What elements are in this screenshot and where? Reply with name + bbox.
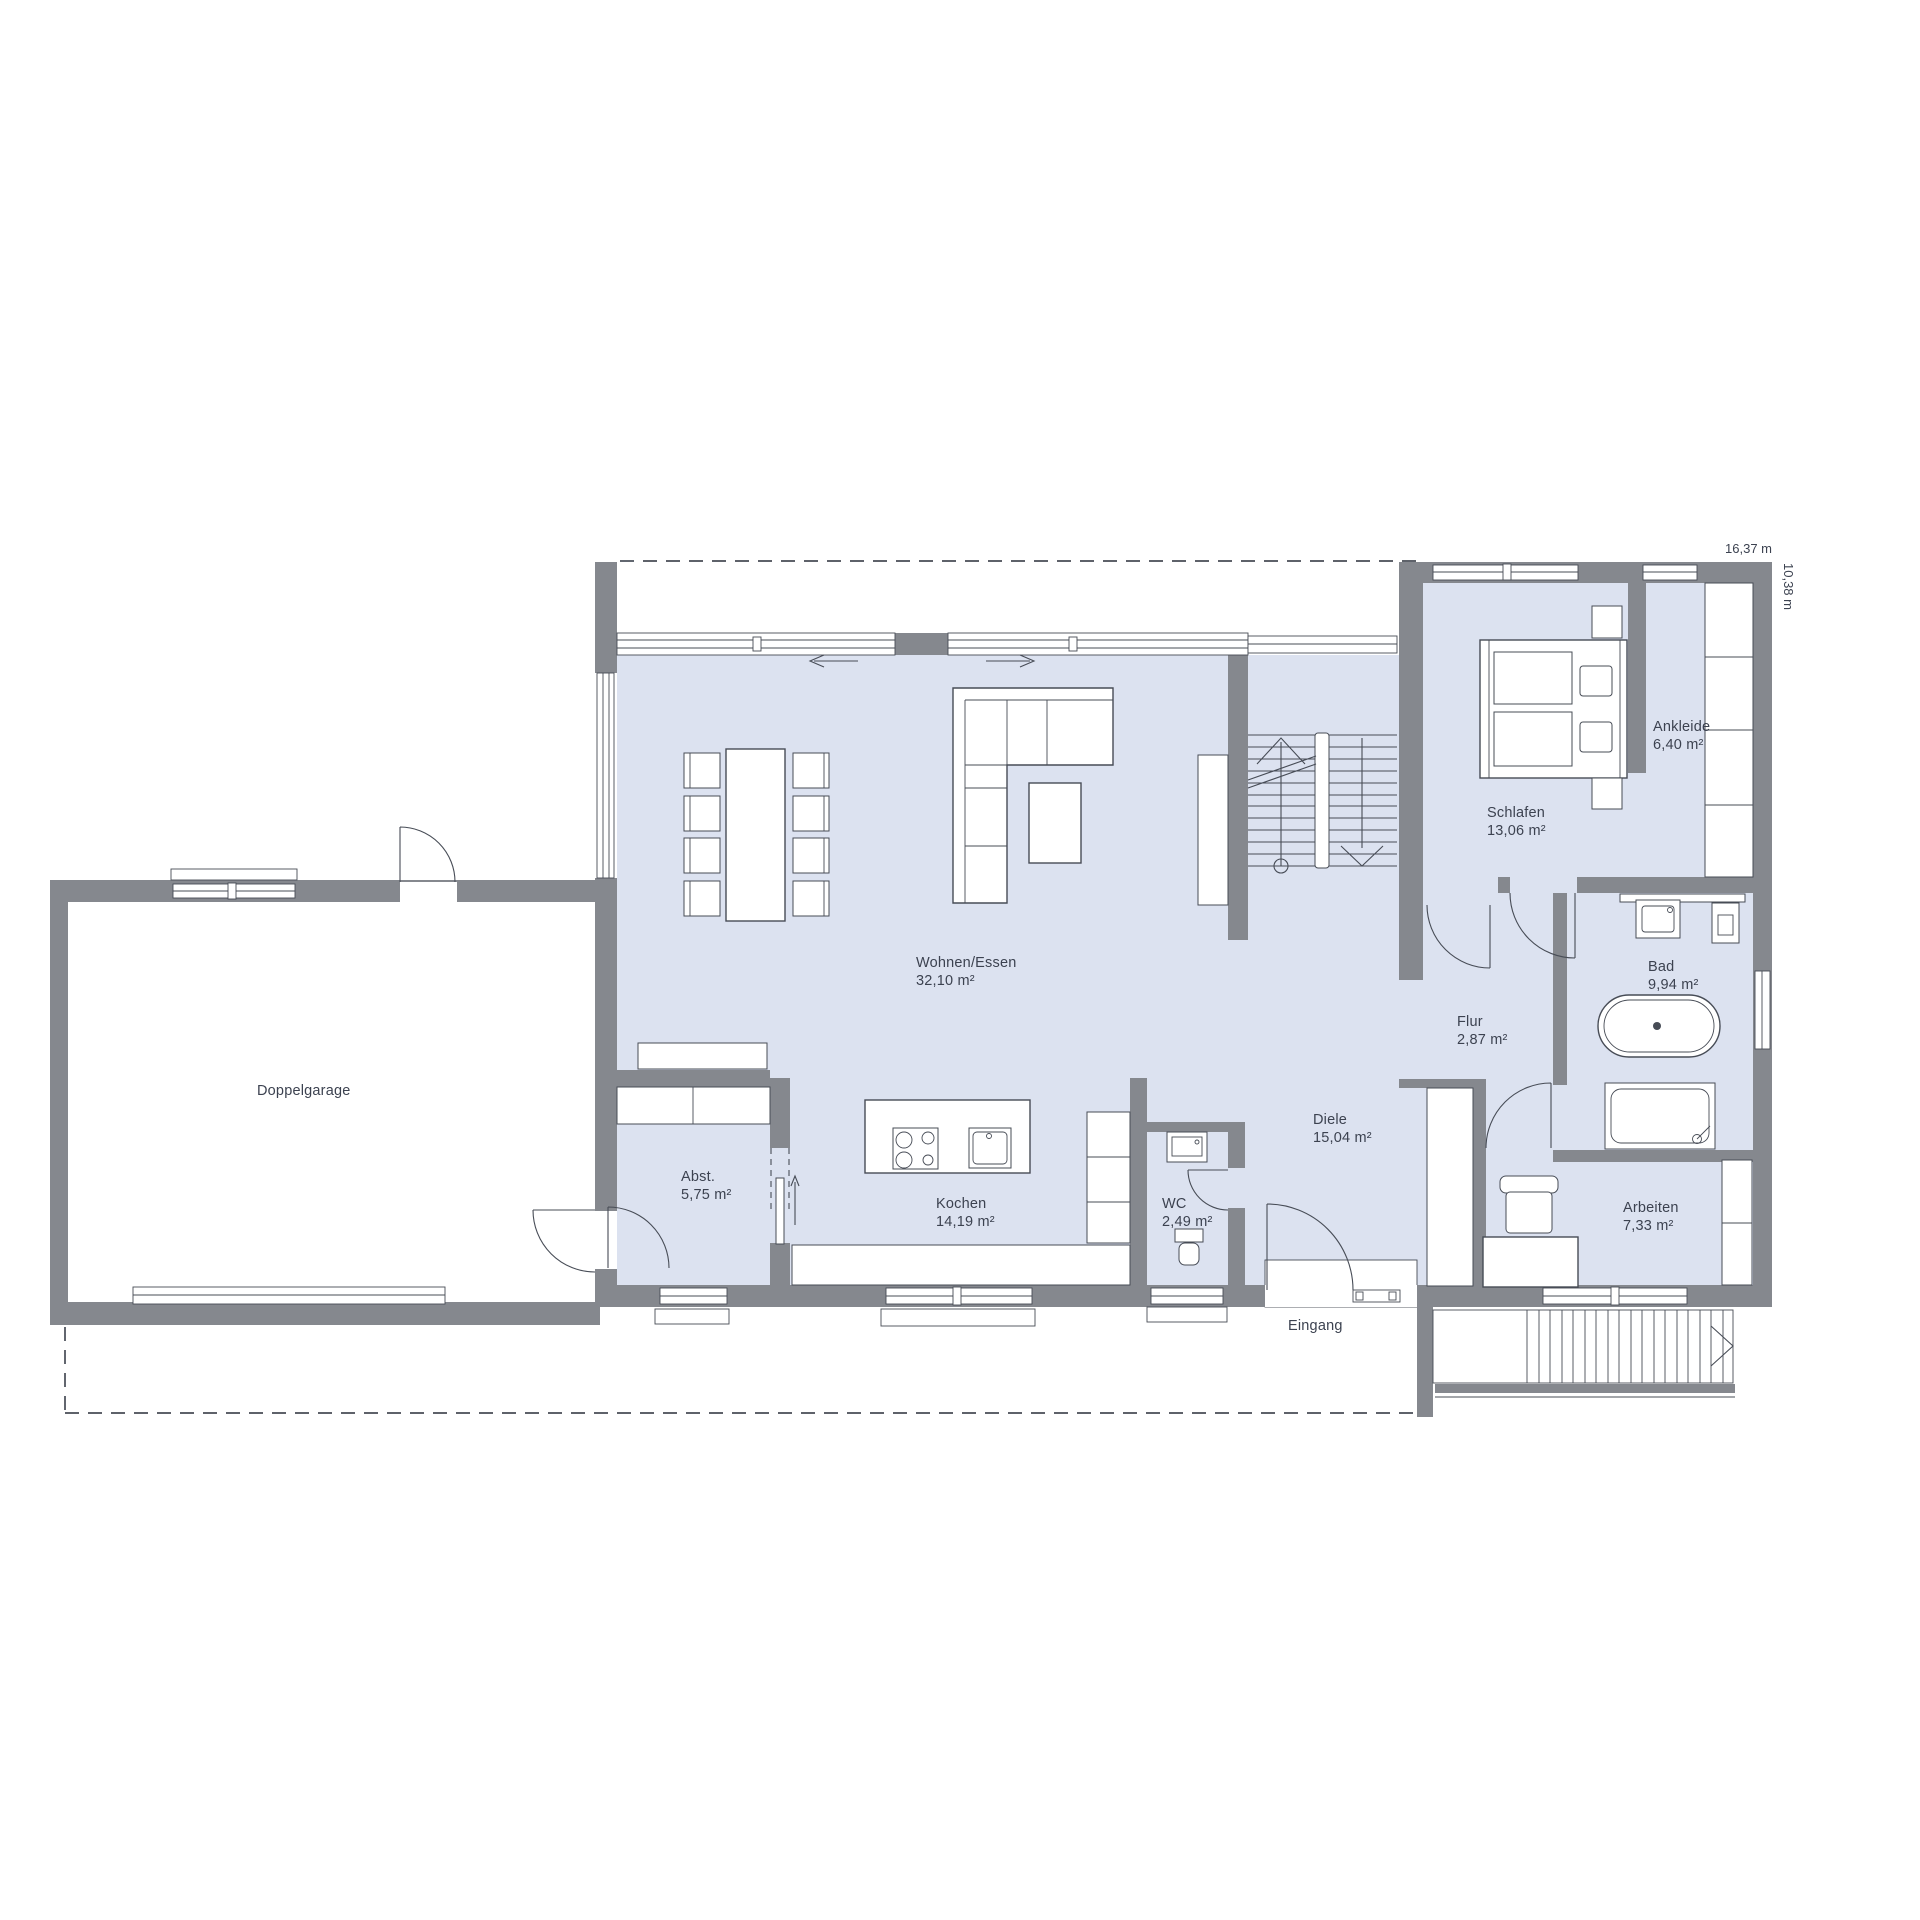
window-joint-tick-2: [1069, 637, 1077, 651]
garage-side-door-opening: [400, 882, 457, 902]
diele-closet: [1427, 1088, 1473, 1286]
label-entrance: Eingang: [1288, 1318, 1343, 1334]
bed-mattress: [1494, 712, 1572, 766]
label-schlafen-area: 13,06 m²: [1487, 823, 1546, 839]
label-wohnen-area: 32,10 m²: [916, 973, 975, 989]
floor-garage: [68, 902, 595, 1302]
dining-chair: [684, 881, 720, 916]
dimension-depth: 10,38 m: [1781, 563, 1796, 610]
tv-sideboard: [1198, 755, 1228, 905]
nightstand: [1592, 606, 1622, 638]
entrance-sidelight-tick-2: [1389, 1292, 1396, 1300]
wall-west-mid: [595, 878, 617, 1211]
wall-garage-north: [68, 880, 600, 902]
kitchen-counter-south: [792, 1245, 1130, 1285]
wall-abst-north: [615, 1070, 770, 1087]
desk-chair-back: [1500, 1176, 1558, 1193]
dining-chair: [684, 796, 720, 831]
stairs-exterior: [1433, 1310, 1735, 1397]
wall-flur-north-1: [1498, 877, 1510, 893]
window-living-north-2: [948, 633, 1248, 655]
window-garage-tick: [228, 883, 236, 899]
dimension-width: 16,37 m: [1725, 541, 1772, 556]
label-arbeiten-area: 7,33 m²: [1623, 1218, 1674, 1234]
label-schlafen-name: Schlafen: [1487, 805, 1545, 821]
wall-schlafen-ankleide: [1628, 583, 1646, 773]
shower: [1605, 1083, 1715, 1149]
bed-pillow: [1580, 722, 1612, 752]
nightstand: [1592, 778, 1622, 809]
bed-mattress: [1494, 652, 1572, 704]
sideboard-abst-wall: [638, 1043, 767, 1069]
cooktop: [893, 1128, 938, 1169]
sill-wc-south: [1147, 1307, 1227, 1322]
label-ankleide-area: 6,40 m²: [1653, 737, 1704, 753]
window-bad-east: [1755, 971, 1770, 1049]
sill-abst-south: [655, 1309, 729, 1324]
wall-wc-west: [1130, 1078, 1147, 1307]
wall-flur-bad: [1553, 893, 1567, 1085]
abst-shelf: [617, 1087, 770, 1124]
bed-pillow: [1580, 666, 1612, 696]
window-arbeiten-tick: [1611, 1287, 1619, 1305]
window-stairwell-north: [1248, 636, 1397, 653]
wall-west-top: [595, 562, 617, 673]
dining-table: [726, 749, 785, 921]
stairs-center-stringer: [1315, 733, 1329, 868]
floor-plan-page: Wohnen/Essen 32,10 m² Kochen 14,19 m² Ab…: [0, 0, 1920, 1920]
label-wc-area: 2,49 m²: [1162, 1214, 1213, 1230]
label-diele-area: 15,04 m²: [1313, 1130, 1372, 1146]
wall-abst-east-2: [770, 1243, 790, 1285]
bathtub-drain: [1653, 1022, 1661, 1030]
wall-wc-north: [1147, 1122, 1230, 1132]
wall-pier-north-glazing: [895, 633, 948, 655]
wall-wc-east-2: [1228, 1208, 1245, 1285]
arbeiten-shelf: [1722, 1160, 1752, 1285]
wall-east: [1753, 562, 1772, 1307]
window-ankleide-north: [1643, 565, 1697, 580]
label-abst-name: Abst.: [681, 1169, 715, 1185]
window-living-west: [597, 673, 614, 878]
wall-garage-south: [50, 1302, 600, 1325]
toilet-bowl: [1179, 1243, 1199, 1265]
label-bad-name: Bad: [1648, 959, 1674, 975]
dining-chair: [684, 753, 720, 788]
label-garage: Doppelgarage: [257, 1083, 351, 1099]
sill-garage-north: [171, 869, 297, 880]
wall-stairwell-east: [1399, 562, 1423, 980]
wall-flur-north-2: [1577, 877, 1753, 893]
sill-kochen-south: [881, 1309, 1035, 1326]
ottoman: [1029, 783, 1081, 863]
door-garage-side: [400, 827, 455, 882]
bad-radiator: [1712, 903, 1739, 943]
wall-abst-east-1: [770, 1078, 790, 1148]
label-diele-name: Diele: [1313, 1112, 1347, 1128]
wc-sink: [1167, 1132, 1207, 1162]
label-kochen-name: Kochen: [936, 1196, 986, 1212]
window-schlafen-tick: [1503, 564, 1511, 580]
label-flur-area: 2,87 m²: [1457, 1032, 1508, 1048]
label-kochen-area: 14,19 m²: [936, 1214, 995, 1230]
label-flur-name: Flur: [1457, 1014, 1483, 1030]
label-wohnen-name: Wohnen/Essen: [916, 955, 1016, 971]
sliding-door-leaf: [776, 1178, 784, 1244]
kitchen-tall-cabinets: [1087, 1112, 1130, 1243]
wall-diele-closet-top: [1399, 1079, 1486, 1088]
desk: [1483, 1237, 1578, 1287]
wall-stairwell-west: [1228, 653, 1248, 940]
entrance-sidelight-tick-1: [1356, 1292, 1363, 1300]
toilet-tank: [1175, 1229, 1203, 1242]
wall-wc-east-1: [1228, 1122, 1245, 1168]
window-kochen-tick: [953, 1287, 961, 1305]
label-wc-name: WC: [1162, 1196, 1187, 1212]
desk-chair-seat: [1506, 1192, 1552, 1233]
stairs-exterior-handrail: [1435, 1384, 1735, 1393]
dining-chair: [684, 838, 720, 873]
label-ankleide-name: Ankleide: [1653, 719, 1710, 735]
wall-porch-stub: [1417, 1285, 1433, 1417]
garage-door: [133, 1287, 445, 1304]
floor-plan-drawing: Wohnen/Essen 32,10 m² Kochen 14,19 m² Ab…: [0, 0, 1920, 1920]
label-abst-area: 5,75 m²: [681, 1187, 732, 1203]
label-bad-area: 9,94 m²: [1648, 977, 1699, 993]
wall-garage-west: [50, 880, 68, 1325]
window-joint-tick-1: [753, 637, 761, 651]
label-arbeiten-name: Arbeiten: [1623, 1200, 1679, 1216]
